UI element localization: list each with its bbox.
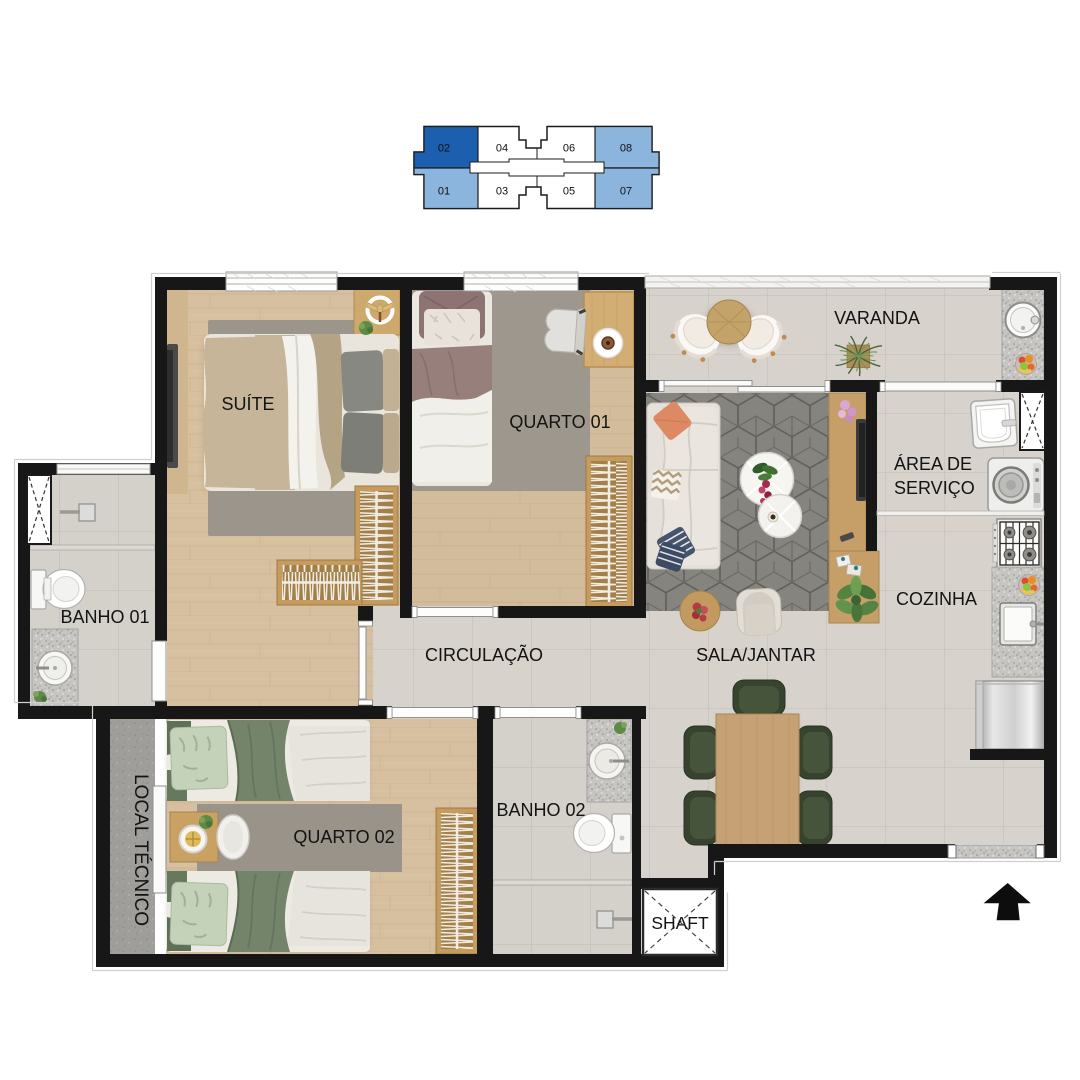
svg-text:LOCAL TÉCNICO: LOCAL TÉCNICO	[130, 774, 151, 926]
svg-text:ÁREA DE: ÁREA DE	[894, 454, 972, 474]
svg-text:07: 07	[620, 186, 632, 198]
svg-text:BANHO 01: BANHO 01	[60, 607, 149, 627]
svg-text:QUARTO 02: QUARTO 02	[293, 827, 394, 847]
svg-text:QUARTO 01: QUARTO 01	[509, 412, 610, 432]
svg-text:04: 04	[496, 143, 508, 155]
svg-text:BANHO 02: BANHO 02	[496, 800, 585, 820]
svg-text:03: 03	[496, 186, 508, 198]
svg-text:VARANDA: VARANDA	[834, 308, 920, 328]
svg-text:SERVIÇO: SERVIÇO	[894, 478, 975, 498]
svg-text:SHAFT: SHAFT	[651, 913, 709, 933]
svg-text:05: 05	[563, 186, 575, 198]
svg-text:02: 02	[438, 143, 450, 155]
svg-text:SALA/JANTAR: SALA/JANTAR	[696, 645, 816, 665]
svg-text:06: 06	[563, 143, 575, 155]
svg-text:01: 01	[438, 186, 450, 198]
svg-text:08: 08	[620, 143, 632, 155]
svg-text:COZINHA: COZINHA	[896, 589, 977, 609]
svg-text:SUÍTE: SUÍTE	[221, 394, 274, 414]
svg-text:CIRCULAÇÃO: CIRCULAÇÃO	[425, 644, 543, 665]
